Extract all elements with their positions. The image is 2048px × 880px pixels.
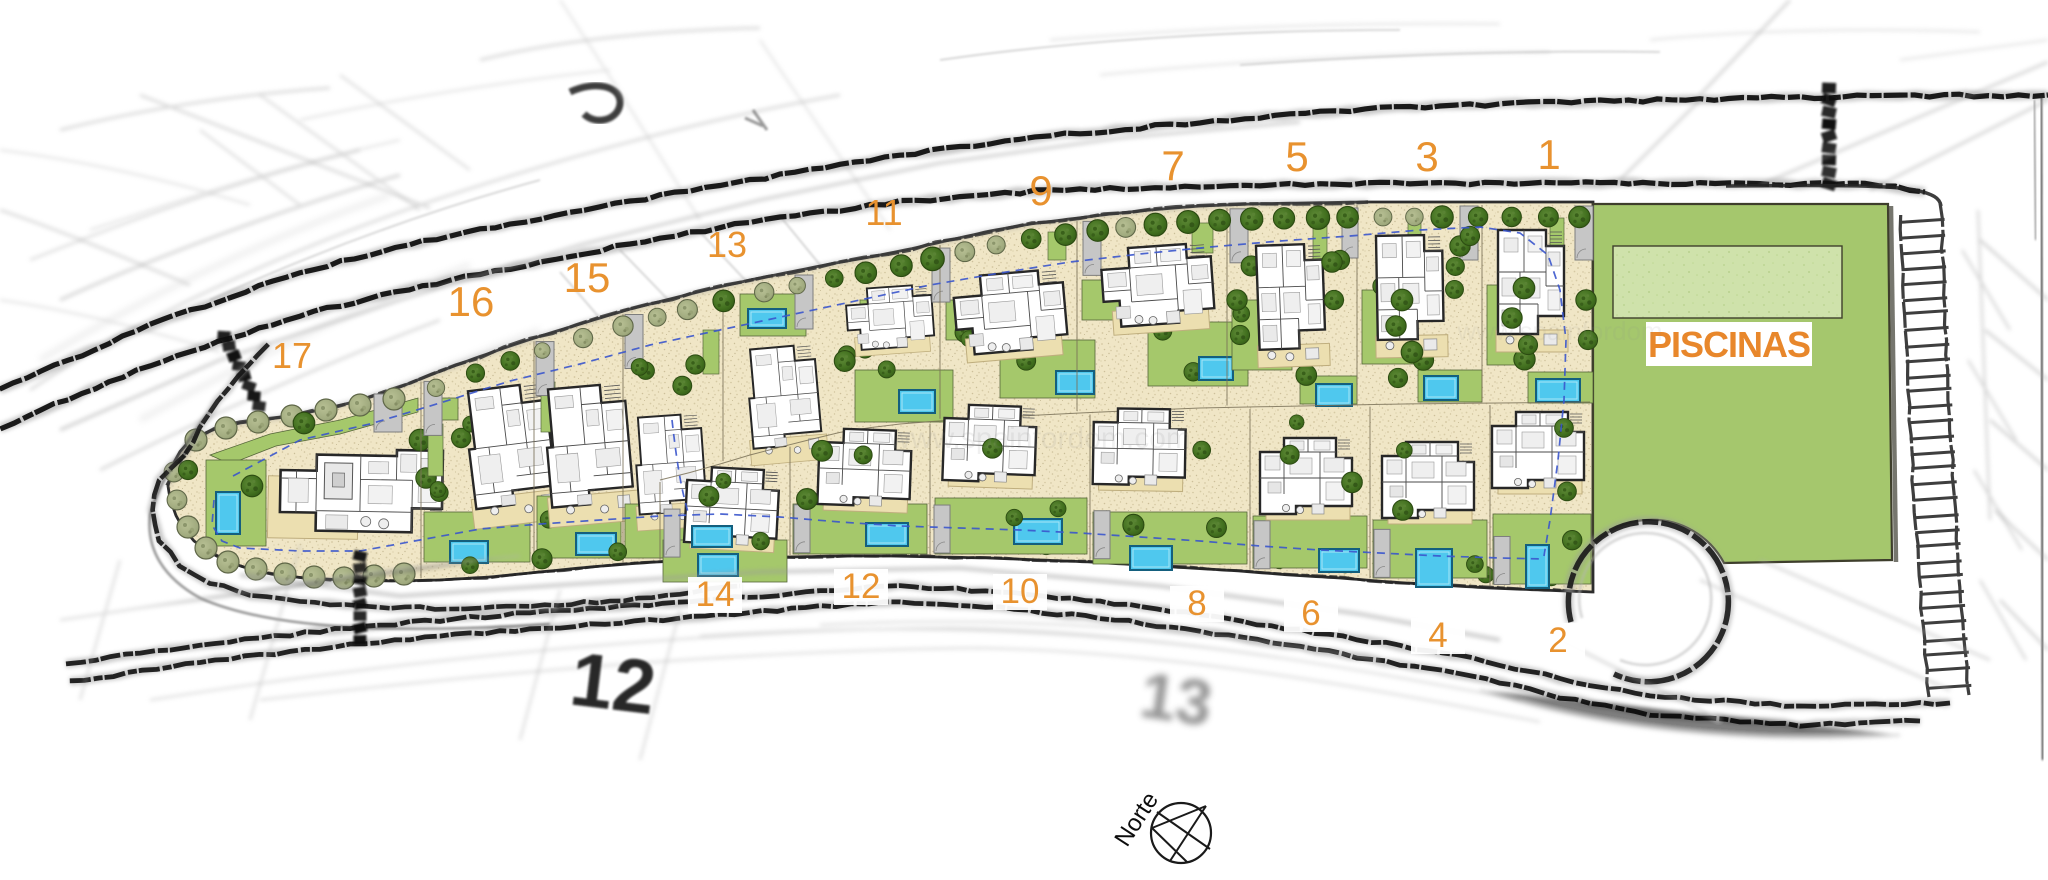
- svg-text:2: 2: [1548, 621, 1567, 660]
- svg-text:14: 14: [696, 575, 735, 614]
- svg-text:12: 12: [566, 637, 660, 732]
- svg-text:13: 13: [707, 224, 747, 265]
- svg-text:10: 10: [1001, 572, 1040, 611]
- svg-text:11: 11: [865, 192, 902, 233]
- svg-text:www.spainfordom: www.spainfordom: [1456, 316, 1662, 346]
- svg-text:16: 16: [448, 278, 495, 325]
- svg-text:13: 13: [1136, 659, 1217, 740]
- svg-text:9: 9: [1029, 167, 1052, 214]
- svg-text:4: 4: [1428, 616, 1447, 655]
- svg-text:12: 12: [842, 567, 881, 606]
- svg-text:7: 7: [1161, 142, 1184, 189]
- svg-text:8: 8: [1187, 584, 1206, 623]
- svg-text:5: 5: [1285, 133, 1308, 180]
- svg-text:3: 3: [1415, 133, 1438, 180]
- svg-text:PISCINAS: PISCINAS: [1648, 324, 1810, 365]
- svg-text:1: 1: [1537, 131, 1560, 178]
- svg-text:15: 15: [564, 254, 611, 301]
- svg-text:6: 6: [1301, 594, 1320, 633]
- svg-text:17: 17: [272, 335, 312, 376]
- svg-text:www.spainfordom.com: www.spainfordom.com: [888, 422, 1191, 455]
